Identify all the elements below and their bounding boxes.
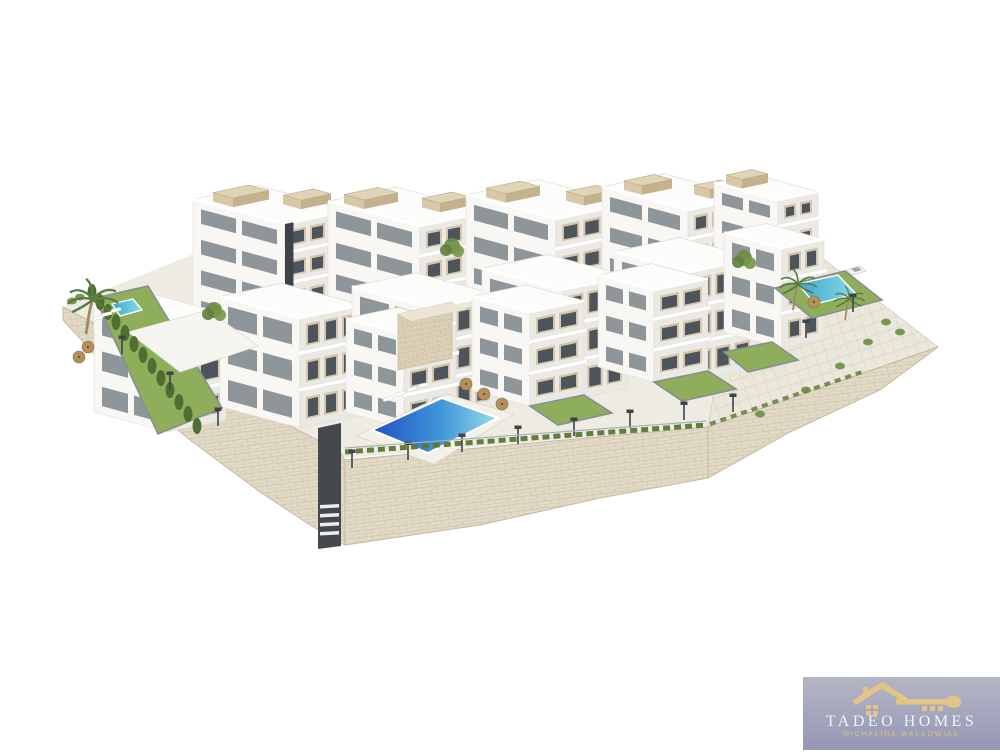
window-glass bbox=[807, 317, 816, 333]
parasol-pole bbox=[87, 346, 89, 348]
street-lamp-head bbox=[459, 434, 466, 438]
window-glass bbox=[326, 393, 336, 413]
cypress-hedge bbox=[193, 418, 202, 434]
window-glass bbox=[308, 324, 318, 344]
street-lamp-head bbox=[571, 418, 578, 422]
tree bbox=[452, 245, 464, 257]
window-glass bbox=[459, 310, 470, 331]
window-glass bbox=[326, 357, 336, 377]
tree bbox=[744, 257, 756, 269]
window-glass bbox=[589, 366, 600, 387]
architectural-render bbox=[0, 0, 1000, 750]
window-glass bbox=[790, 321, 799, 337]
street-lamp-head bbox=[349, 450, 356, 454]
render-scene-svg bbox=[0, 0, 1000, 750]
house-key-icon bbox=[836, 680, 968, 716]
parasol-pole bbox=[465, 383, 467, 385]
street-lamp-head bbox=[515, 426, 522, 430]
brand-logo: TADEO HOMES MICHALINA WALKOWIAK bbox=[803, 677, 1000, 750]
parasol-pole bbox=[483, 393, 485, 395]
window-glass bbox=[790, 254, 799, 270]
street-lamp-head bbox=[627, 410, 634, 414]
bush bbox=[835, 363, 845, 370]
window-glass bbox=[696, 216, 706, 230]
window-glass bbox=[459, 347, 470, 368]
parasol-pole bbox=[813, 301, 815, 303]
street-lamp-head bbox=[167, 372, 174, 376]
cypress-hedge bbox=[112, 314, 121, 330]
bush bbox=[895, 329, 905, 336]
cypress-hedge bbox=[139, 347, 148, 363]
cypress-hedge bbox=[175, 394, 184, 410]
street-lamp-head bbox=[119, 336, 126, 340]
cypress-hedge bbox=[148, 358, 157, 374]
window-glass bbox=[308, 397, 318, 417]
window-glass bbox=[802, 203, 810, 214]
bush bbox=[863, 339, 873, 346]
tree bbox=[732, 256, 744, 268]
window-glass bbox=[293, 229, 304, 243]
street-lamp-head bbox=[730, 394, 737, 398]
window-glass bbox=[326, 320, 336, 340]
window-glass bbox=[308, 360, 318, 380]
cypress-hedge bbox=[130, 336, 139, 352]
cypress-hedge bbox=[157, 370, 166, 386]
bush bbox=[801, 387, 811, 394]
tree bbox=[214, 309, 226, 321]
parasol-pole bbox=[501, 403, 503, 405]
street-lamp-head bbox=[850, 294, 857, 298]
window-glass bbox=[807, 250, 816, 266]
cypress-hedge bbox=[184, 406, 193, 422]
brand-subtitle: MICHALINA WALKOWIAK bbox=[843, 731, 960, 739]
tree bbox=[202, 308, 214, 320]
parasol-pole bbox=[78, 356, 80, 358]
brand-name: TADEO HOMES bbox=[826, 714, 977, 730]
tree bbox=[440, 244, 452, 256]
window-glass bbox=[428, 231, 440, 246]
stair-shaft bbox=[318, 423, 341, 549]
bush bbox=[755, 411, 765, 418]
street-lamp-head bbox=[803, 320, 810, 324]
street-lamp-head bbox=[215, 408, 222, 412]
window-glass bbox=[786, 206, 794, 217]
window-glass bbox=[312, 225, 323, 239]
window-glass bbox=[428, 263, 440, 278]
window-glass bbox=[293, 260, 304, 274]
street-lamp-head bbox=[681, 402, 688, 406]
bush bbox=[881, 319, 891, 326]
window-glass bbox=[448, 259, 460, 274]
window-glass bbox=[312, 256, 323, 270]
window-glass bbox=[717, 347, 728, 367]
